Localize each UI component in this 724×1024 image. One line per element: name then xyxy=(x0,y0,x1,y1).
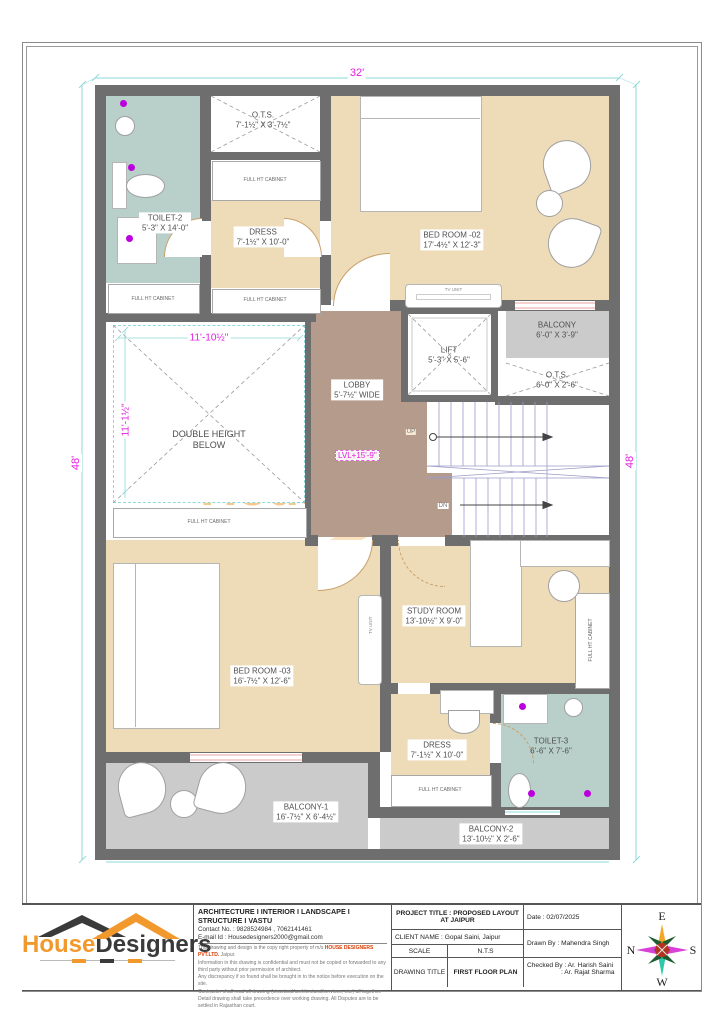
dim-left: 48' xyxy=(70,454,82,472)
label-dress-bottom: DRESS7'-1½" X 10'-0" xyxy=(408,739,467,760)
dim-dh-width: 11'-10½" xyxy=(188,333,231,344)
label-study: STUDY ROOM13'-10½" X 9'-0" xyxy=(402,605,465,626)
light-point xyxy=(528,790,535,797)
label-cabinet: FULL HT CABINET xyxy=(129,296,176,302)
label-dn: DN xyxy=(438,503,449,509)
wall xyxy=(200,96,211,221)
project-table: PROJECT TITLE : PROPOSED LAYOUT AT JAIPU… xyxy=(392,905,622,990)
study-chair xyxy=(548,570,580,602)
label-lobby: LOBBY5'-7½" WIDE xyxy=(331,379,383,400)
label-toilet3: TOILET-36'-6" X 7'-6" xyxy=(527,735,575,756)
wall xyxy=(372,535,398,546)
compass-n: N xyxy=(626,943,635,957)
wall xyxy=(106,313,316,322)
dim-top: 32' xyxy=(348,67,366,79)
compass: E S N W xyxy=(622,905,701,990)
wall xyxy=(320,255,331,305)
logo-roofs-icon xyxy=(30,909,186,939)
drawing-title-label: DRAWING TITLE xyxy=(392,958,448,987)
scale-label: SCALE xyxy=(392,945,448,957)
label-up: UP xyxy=(406,429,416,435)
firm-tagline: ARCHITECTURE I INTERIOR I LANDSCAPE I ST… xyxy=(198,907,387,925)
wall xyxy=(211,152,320,160)
label-lift: LIFT5'-3" X 5'-6" xyxy=(425,344,473,365)
study-desk xyxy=(470,540,522,647)
basin-counter xyxy=(112,162,127,209)
light-point xyxy=(128,164,135,171)
wc-toilet2 xyxy=(126,174,165,198)
wall xyxy=(106,752,380,763)
wc-toilet3 xyxy=(508,773,531,808)
dress-stool xyxy=(448,710,480,734)
wall xyxy=(609,85,620,860)
wall xyxy=(495,396,609,405)
checked-by: Checked By : Ar. Harish Saini : Ar. Raja… xyxy=(524,958,622,987)
compass-e: E xyxy=(658,909,665,923)
wall xyxy=(200,255,211,313)
label-balcony1: BALCONY-116'-7½" X 6'-4½" xyxy=(273,801,338,822)
wall xyxy=(490,807,609,818)
label-toilet2: TOILET-25'-3" X 14'-0" xyxy=(139,212,191,233)
scale-value: N.T.S xyxy=(448,945,523,957)
wall xyxy=(320,96,331,221)
level-annotation: LVL+15'-9" xyxy=(335,450,380,461)
logo-dashes xyxy=(40,960,175,969)
dim-dh-height: 11'-1½" xyxy=(121,401,132,438)
shower-toilet2 xyxy=(115,116,135,136)
bed-bedroom3 xyxy=(113,563,220,729)
light-point xyxy=(120,100,127,107)
firm-email[interactable]: E-mail Id : Housedesigners2000@gmail.com xyxy=(198,934,387,941)
shower-toilet3 xyxy=(564,698,583,717)
label-bedroom3: BED ROOM -0316'-7½" X 12'-6" xyxy=(230,665,293,686)
label-ots-right: O.T.S.6'-0" X 2'-6" xyxy=(533,369,581,390)
stairs-lower-flight xyxy=(452,473,609,537)
project-date: Date : 02/07/2025 xyxy=(524,905,622,930)
round-table xyxy=(536,190,563,217)
label-balcony2: BALCONY-213'-10½" X 2'-6" xyxy=(459,823,522,844)
compass-s: S xyxy=(689,943,696,957)
bed-pillow-line xyxy=(360,118,480,119)
label-ots-top: O.T.S.7'-1½" X 3'-7½" xyxy=(233,109,294,130)
scale-row: SCALE N.T.S xyxy=(392,945,524,958)
label-cabinet: FULL HT CABINET xyxy=(185,519,232,525)
tv-unit-bedroom2: TV UNIT xyxy=(405,284,502,308)
firm-info: ARCHITECTURE I INTERIOR I LANDSCAPE I ST… xyxy=(194,905,392,990)
wall xyxy=(380,807,490,818)
bed-bedroom2 xyxy=(360,96,482,212)
title-block: HouseDesigners ARCHITECTURE I INTERIOR I… xyxy=(22,903,701,991)
tv-unit-bedroom3: TV UNIT xyxy=(358,595,382,685)
drawn-by: Drawn By : Mahendra Singh xyxy=(524,930,622,958)
label-cabinet: FULL HT CABINET xyxy=(241,297,288,303)
stairs-upper-flight xyxy=(427,402,609,473)
light-point xyxy=(584,790,591,797)
label-double-height: DOUBLE HEIGHTBELOW xyxy=(169,428,249,452)
label-bedroom2: BED ROOM -0217'-4½" X 12'-3" xyxy=(420,229,483,250)
compass-w: W xyxy=(656,975,668,988)
label-balcony-top: BALCONY6'-0" X 3'-9" xyxy=(533,319,581,340)
basin-counter-toilet3 xyxy=(503,694,548,724)
client-name: CLIENT NAME : Gopal Saini, Jaipur xyxy=(392,930,524,945)
project-title: PROJECT TITLE : PROPOSED LAYOUT AT JAIPU… xyxy=(392,905,524,930)
label-cabinet: FULL HT CABINET xyxy=(416,787,463,793)
bed-pillow-line xyxy=(135,563,136,727)
light-point xyxy=(519,703,526,710)
disclaimer: This drawing and design is the copy righ… xyxy=(198,943,387,1010)
wall xyxy=(391,683,398,694)
label-dress-top: DRESS7'-1½" X 10'-0" xyxy=(234,226,293,247)
label-cabinet: FULL HT CABINET xyxy=(588,616,594,663)
drawing-title-value: FIRST FLOOR PLAN xyxy=(448,958,523,987)
label-cabinet: FULL HT CABINET xyxy=(241,177,288,183)
double-height-void xyxy=(113,325,305,503)
dim-right: 48' xyxy=(624,452,636,470)
floor-plan-sheet: { "dimensions": { "top": "32'", "left": … xyxy=(0,0,724,1024)
wall xyxy=(95,85,106,860)
wall xyxy=(95,849,620,860)
logo: HouseDesigners xyxy=(22,905,194,990)
light-point xyxy=(126,235,133,242)
study-shelf xyxy=(520,540,610,567)
drawing-title-row: DRAWING TITLE FIRST FLOOR PLAN xyxy=(392,958,524,987)
compass-rose-icon: E S N W xyxy=(626,908,698,988)
wall xyxy=(95,85,620,96)
wall xyxy=(305,305,311,537)
wall xyxy=(368,763,380,818)
firm-contact: Contact No. : 9828524984 , 7062141461 xyxy=(198,926,387,933)
